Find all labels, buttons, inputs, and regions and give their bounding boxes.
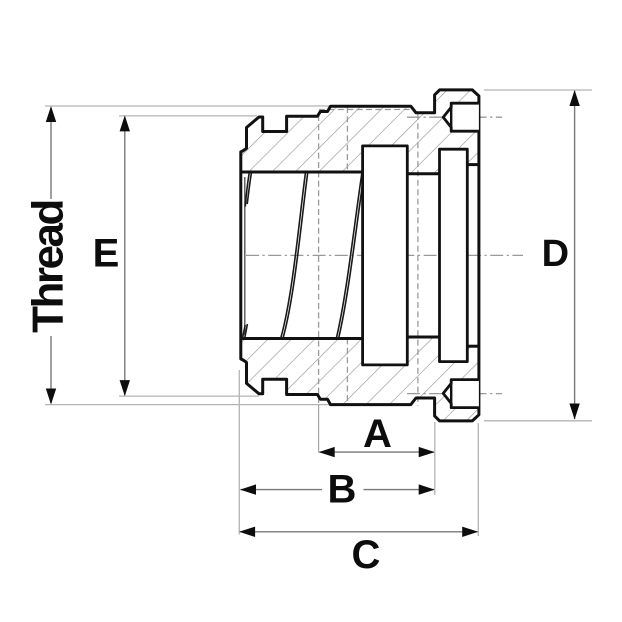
svg-text:C: C — [352, 533, 381, 577]
svg-text:D: D — [542, 233, 569, 275]
svg-text:A: A — [363, 412, 392, 456]
svg-text:B: B — [328, 468, 357, 512]
svg-text:E: E — [93, 232, 120, 276]
svg-text:Thread: Thread — [24, 201, 73, 333]
